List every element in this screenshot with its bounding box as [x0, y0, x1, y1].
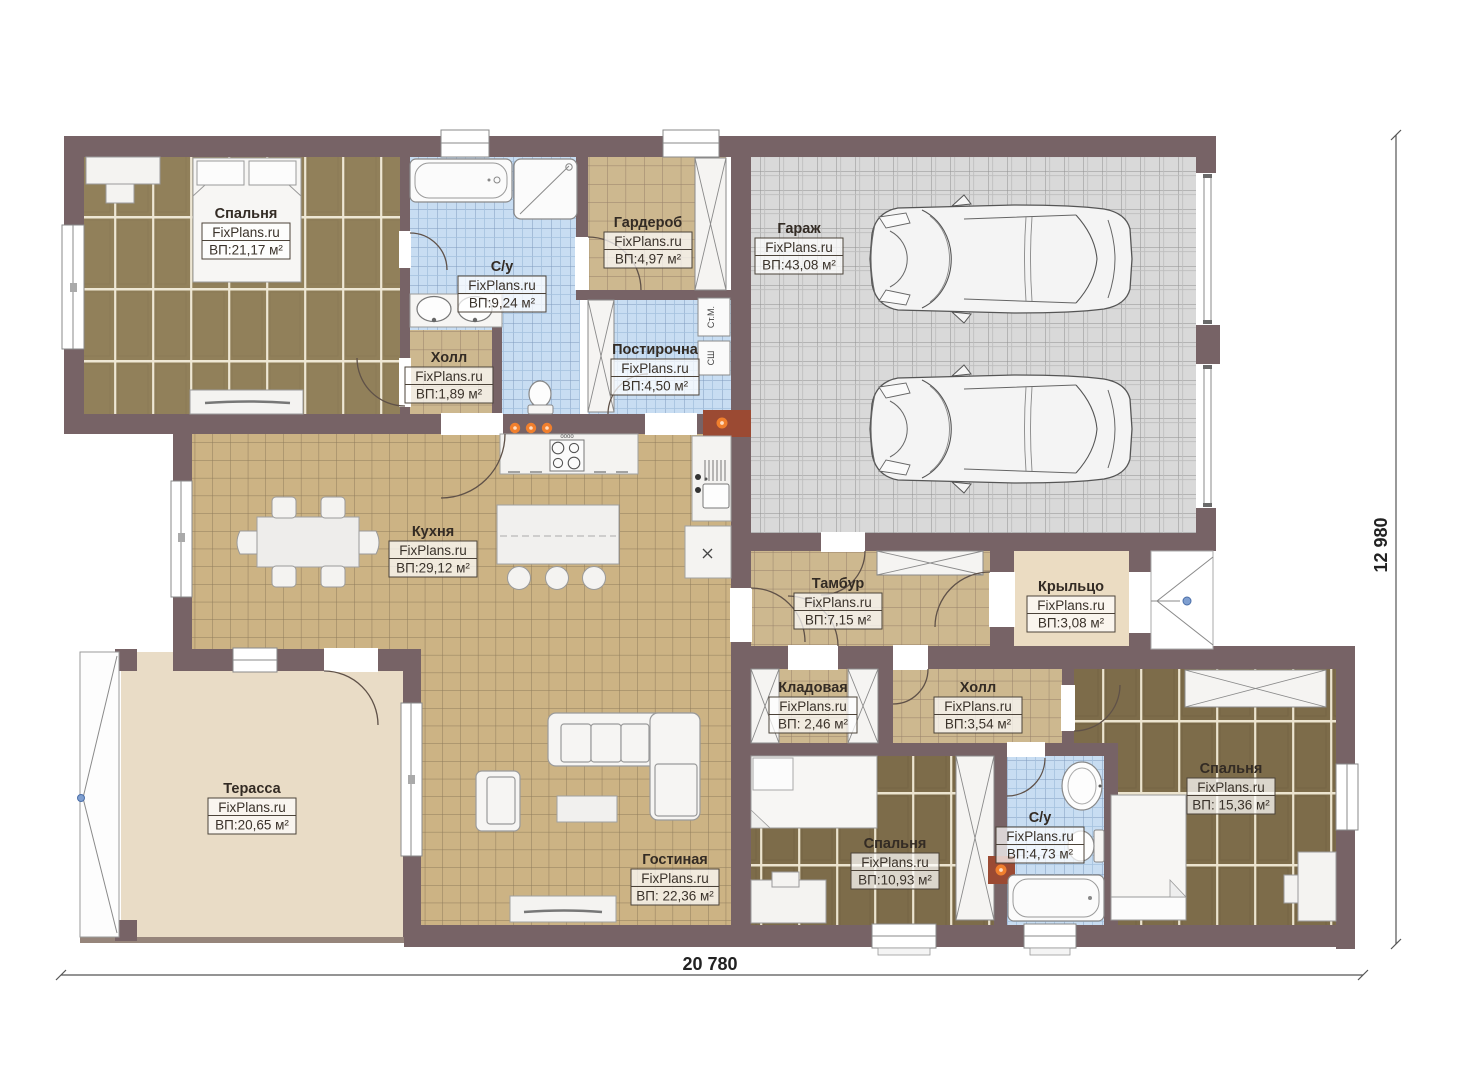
svg-text:FixPlans.ru: FixPlans.ru — [212, 225, 280, 240]
svg-text:ВП:20,65 м²: ВП:20,65 м² — [215, 818, 289, 833]
svg-text:Гостиная: Гостиная — [642, 852, 708, 868]
svg-text:ВП:4,97 м²: ВП:4,97 м² — [615, 252, 682, 267]
svg-text:С/у: С/у — [491, 259, 514, 275]
svg-text:FixPlans.ru: FixPlans.ru — [641, 871, 709, 886]
svg-text:ВП:3,08 м²: ВП:3,08 м² — [1038, 616, 1105, 631]
svg-text:Спальня: Спальня — [215, 206, 278, 222]
svg-text:ВП: 22,36 м²: ВП: 22,36 м² — [636, 889, 714, 904]
svg-text:Гардероб: Гардероб — [614, 215, 683, 231]
svg-text:FixPlans.ru: FixPlans.ru — [804, 595, 872, 610]
svg-text:Кладовая: Кладовая — [778, 680, 847, 696]
svg-text:ВП:7,15 м²: ВП:7,15 м² — [805, 613, 872, 628]
svg-text:Спальня: Спальня — [864, 836, 927, 852]
svg-text:Холл: Холл — [431, 350, 467, 366]
svg-text:Холл: Холл — [960, 680, 996, 696]
svg-text:FixPlans.ru: FixPlans.ru — [415, 369, 483, 384]
svg-text:FixPlans.ru: FixPlans.ru — [944, 699, 1012, 714]
svg-text:Тамбур: Тамбур — [812, 576, 865, 592]
svg-text:Крыльцо: Крыльцо — [1038, 579, 1104, 595]
svg-text:ВП:9,24 м²: ВП:9,24 м² — [469, 296, 536, 311]
svg-text:ВП:3,54 м²: ВП:3,54 м² — [945, 717, 1012, 732]
svg-text:Гараж: Гараж — [777, 221, 821, 237]
svg-text:FixPlans.ru: FixPlans.ru — [218, 800, 286, 815]
svg-text:FixPlans.ru: FixPlans.ru — [861, 855, 929, 870]
svg-text:20 780: 20 780 — [682, 954, 737, 974]
svg-text:ВП:1,89 м²: ВП:1,89 м² — [416, 387, 483, 402]
svg-text:ВП:29,12 м²: ВП:29,12 м² — [396, 561, 470, 576]
svg-text:FixPlans.ru: FixPlans.ru — [1037, 598, 1105, 613]
svg-text:ВП:10,93 м²: ВП:10,93 м² — [858, 873, 932, 888]
svg-text:FixPlans.ru: FixPlans.ru — [614, 234, 682, 249]
svg-text:FixPlans.ru: FixPlans.ru — [1006, 829, 1074, 844]
svg-text:С/у: С/у — [1029, 810, 1052, 826]
svg-text:ВП:43,08 м²: ВП:43,08 м² — [762, 258, 836, 273]
svg-text:FixPlans.ru: FixPlans.ru — [779, 699, 847, 714]
svg-text:oooo: oooo — [560, 434, 574, 440]
svg-text:FixPlans.ru: FixPlans.ru — [765, 240, 833, 255]
svg-text:Постирочна: Постирочна — [612, 342, 699, 358]
svg-text:ВП:4,73 м²: ВП:4,73 м² — [1007, 847, 1074, 862]
svg-text:FixPlans.ru: FixPlans.ru — [468, 278, 536, 293]
svg-text:FixPlans.ru: FixPlans.ru — [621, 361, 689, 376]
svg-text:ВП:21,17 м²: ВП:21,17 м² — [209, 243, 283, 258]
svg-text:Спальня: Спальня — [1200, 761, 1263, 777]
svg-text:ВП: 2,46 м²: ВП: 2,46 м² — [778, 717, 849, 732]
svg-text:Ст.М.: Ст.М. — [706, 306, 716, 328]
svg-text:СШ: СШ — [706, 351, 716, 366]
svg-text:Кухня: Кухня — [412, 524, 454, 540]
svg-text:FixPlans.ru: FixPlans.ru — [1197, 780, 1265, 795]
svg-text:ВП:4,50 м²: ВП:4,50 м² — [622, 379, 689, 394]
svg-text:12 980: 12 980 — [1371, 517, 1391, 572]
svg-text:ВП: 15,36 м²: ВП: 15,36 м² — [1192, 798, 1270, 813]
svg-text:FixPlans.ru: FixPlans.ru — [399, 543, 467, 558]
svg-text:Терасса: Терасса — [223, 781, 281, 797]
